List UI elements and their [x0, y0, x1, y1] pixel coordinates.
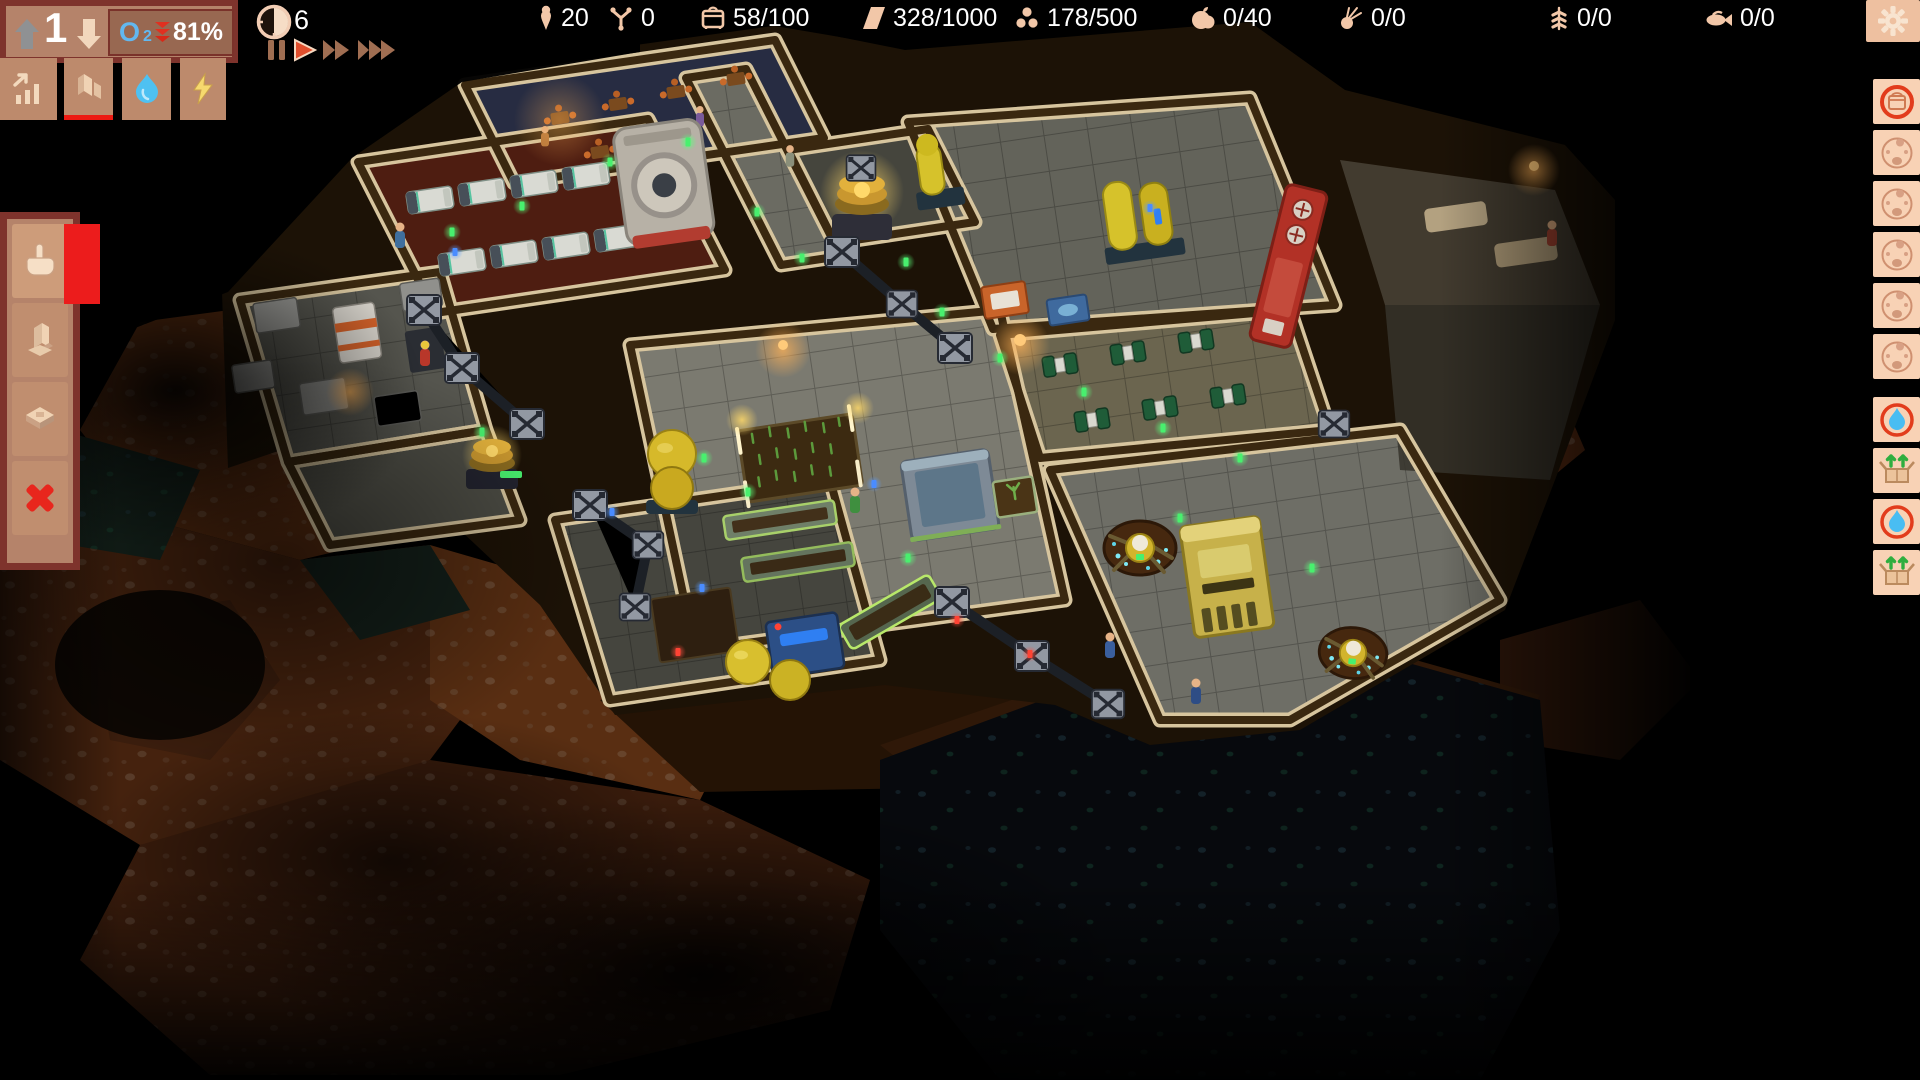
- resource-roots: 0/0: [1338, 0, 1406, 36]
- view-toggle-power[interactable]: [180, 58, 226, 120]
- water-tank-icon: [1878, 401, 1916, 439]
- play-button[interactable]: [292, 38, 318, 62]
- level-down-icon[interactable]: [76, 18, 102, 50]
- resource-crates: 58/100: [700, 0, 809, 36]
- o2-indicator: O2 81%: [108, 9, 234, 56]
- view-toggle-stats[interactable]: [0, 58, 57, 120]
- right-toolbar-supply-1[interactable]: [1873, 448, 1920, 493]
- lightning-icon: [188, 72, 218, 106]
- right-toolbar-supply-2[interactable]: [1873, 550, 1920, 595]
- right-toolbar-water-2[interactable]: [1873, 499, 1920, 544]
- resource-ore: 178/500: [1014, 0, 1137, 36]
- level-up-icon[interactable]: [14, 18, 40, 50]
- game-scene[interactable]: [0, 0, 1920, 1080]
- level-value: 1: [44, 4, 67, 52]
- onion-icon: [1338, 5, 1364, 31]
- resource-fish: 0/0: [1703, 0, 1775, 36]
- right-toolbar-colonist-4[interactable]: [1873, 283, 1920, 328]
- cancel-x-icon: [20, 478, 60, 518]
- ore-icon: [1014, 5, 1040, 31]
- crate-icon: [700, 5, 726, 31]
- level-o2-panel: 1 O2 81%: [0, 0, 238, 63]
- apple-icon: [1190, 5, 1216, 31]
- tool-selection-stripe: [64, 224, 100, 304]
- right-toolbar-colonist-3[interactable]: [1873, 232, 1920, 277]
- right-toolbar-storage[interactable]: [1873, 79, 1920, 124]
- o2-falling-icon: [155, 22, 170, 44]
- right-toolbar-colonist-5[interactable]: [1873, 334, 1920, 379]
- tool-build-wall[interactable]: [12, 303, 68, 377]
- fast-forward-button[interactable]: [321, 38, 353, 62]
- stats-icon: [11, 71, 47, 107]
- clock-icon: [256, 4, 292, 40]
- resource-fruit: 0/40: [1190, 0, 1272, 36]
- idle-colonist-icon: [608, 5, 634, 31]
- settings-button[interactable]: [1866, 0, 1920, 42]
- resource-metal: 328/1000: [862, 0, 997, 36]
- dome-tank: [770, 660, 810, 700]
- metal-sheet-icon: [862, 5, 886, 31]
- resource-colonists: 20: [538, 0, 589, 36]
- gear-icon: [1875, 3, 1911, 39]
- fish-icon: [1703, 5, 1733, 31]
- dome-tank: [726, 640, 770, 684]
- pause-button[interactable]: [266, 38, 288, 62]
- o2-value: 81%: [173, 18, 223, 47]
- right-toolbar-water-1[interactable]: [1873, 397, 1920, 442]
- tool-build-floor[interactable]: [12, 382, 68, 456]
- tool-cancel[interactable]: [12, 461, 68, 535]
- small-planter: [993, 476, 1038, 518]
- fastest-forward-button[interactable]: [356, 38, 398, 62]
- view-toggle-build[interactable]: [64, 58, 113, 120]
- storage-crate-icon: [1878, 83, 1916, 121]
- right-toolbar-colonist-2[interactable]: [1873, 181, 1920, 226]
- right-toolbar-colonist-1[interactable]: [1873, 130, 1920, 175]
- rocks-icon: [72, 70, 106, 104]
- floor-tile-icon: [20, 399, 60, 439]
- water-drop-icon: [131, 72, 163, 106]
- water-basin: [899, 449, 1002, 543]
- tool-select[interactable]: [12, 224, 68, 298]
- day-counter: 6: [294, 5, 309, 36]
- view-toggle-water[interactable]: [122, 58, 171, 120]
- wheat-icon: [1548, 5, 1570, 31]
- hand-pointer-icon: [20, 241, 60, 281]
- medical-pod[interactable]: [612, 118, 716, 250]
- ore-processor: [1180, 516, 1275, 638]
- resource-wheat: 0/0: [1548, 0, 1612, 36]
- resource-idle-colonists: 0: [608, 0, 655, 36]
- colonist-pin-icon: [538, 5, 554, 31]
- colonist-slot-icon: [1878, 134, 1916, 172]
- supply-box-icon: [1878, 452, 1916, 490]
- wall-block-icon: [20, 320, 60, 360]
- o2-label: O: [119, 17, 140, 48]
